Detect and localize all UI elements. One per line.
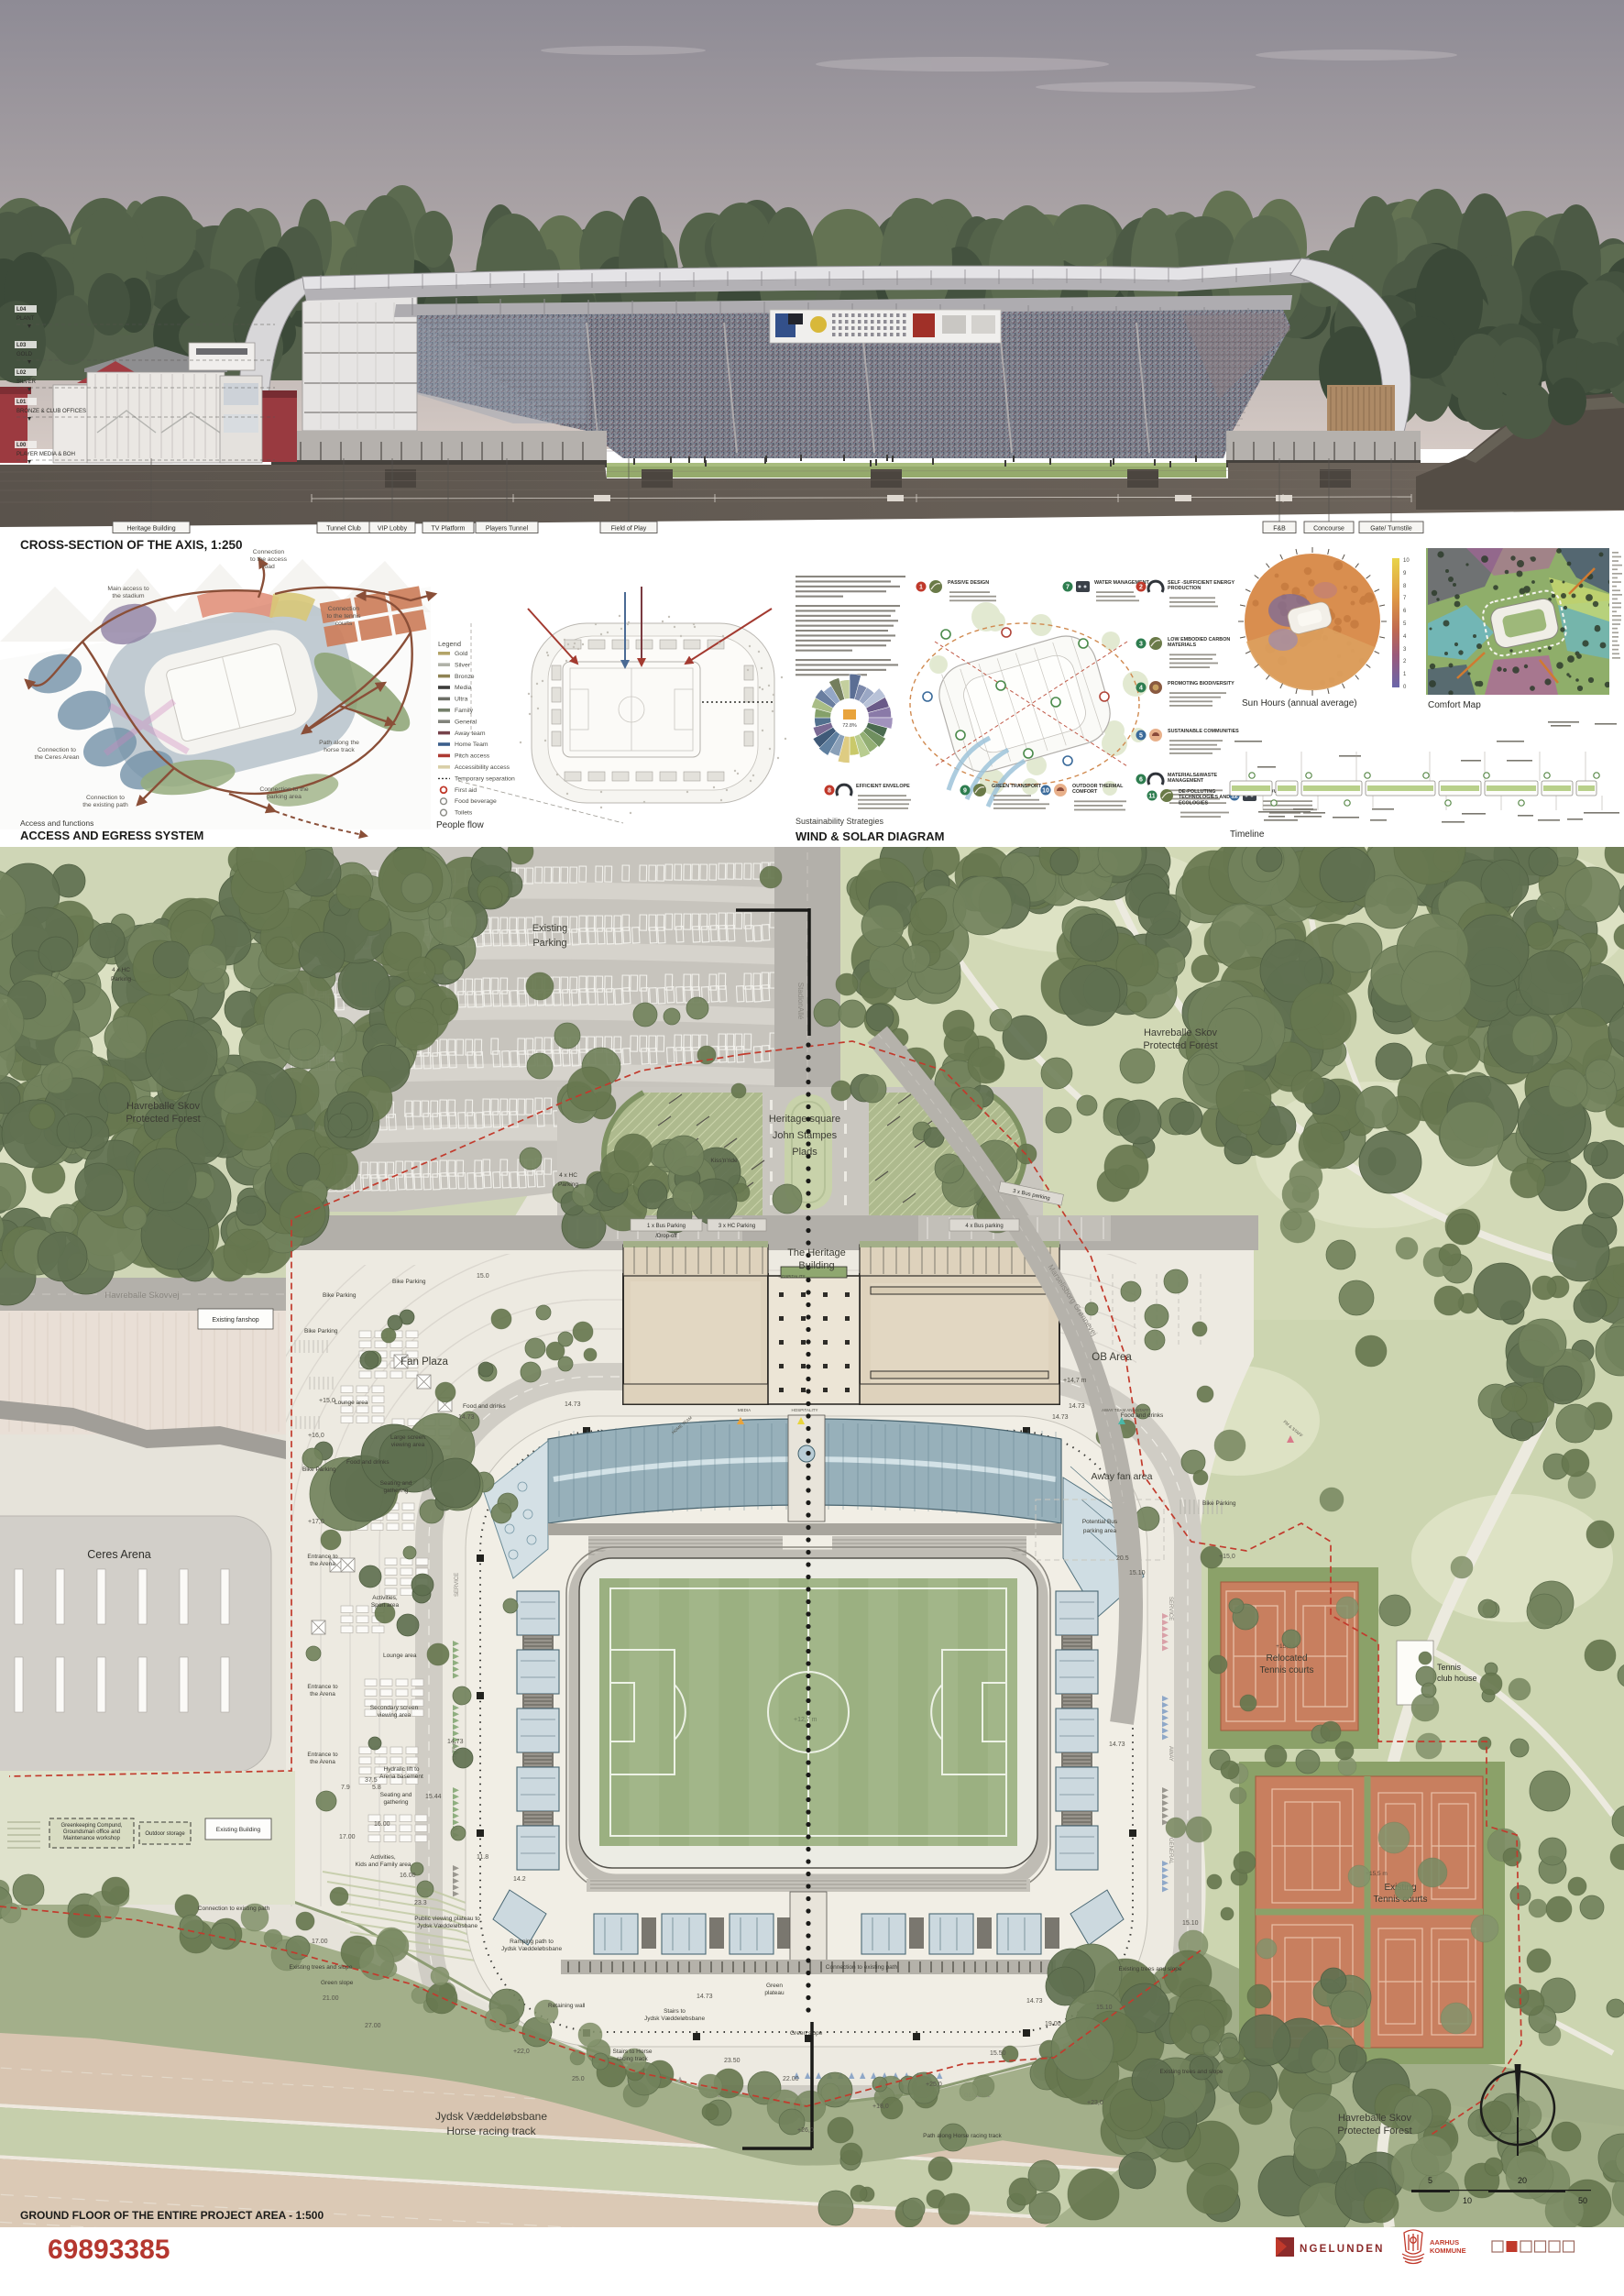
svg-text:Tunnel Club: Tunnel Club bbox=[326, 526, 361, 533]
svg-text:Gold: Gold bbox=[455, 651, 468, 657]
svg-text:5: 5 bbox=[1139, 733, 1143, 740]
svg-text:6: 6 bbox=[1139, 777, 1143, 784]
svg-text:First aid: First aid bbox=[455, 787, 477, 794]
svg-text:9: 9 bbox=[1403, 571, 1407, 577]
svg-text:Parking: Parking bbox=[111, 976, 131, 983]
svg-text:+23,0: +23,0 bbox=[1087, 2100, 1103, 2106]
svg-text:Bike Parking: Bike Parking bbox=[392, 1279, 426, 1285]
svg-text:Plads: Plads bbox=[792, 1147, 817, 1158]
svg-text:1: 1 bbox=[1403, 672, 1407, 677]
svg-text:StadionAllé: StadionAllé bbox=[796, 983, 805, 1020]
svg-text:Green: Green bbox=[766, 1983, 783, 1989]
svg-text:+16,0: +16,0 bbox=[308, 1433, 324, 1439]
svg-text:+14,7 m: +14,7 m bbox=[1063, 1378, 1087, 1384]
svg-text:+17,0: +17,0 bbox=[308, 1519, 324, 1525]
svg-text:Secondary screen: Secondary screen bbox=[370, 1705, 419, 1711]
svg-text:4: 4 bbox=[1403, 634, 1407, 640]
svg-text:People flow: People flow bbox=[436, 820, 484, 830]
svg-text:Path along Horse racing track: Path along Horse racing track bbox=[923, 2133, 1002, 2139]
svg-text:Ceres Arena: Ceres Arena bbox=[87, 1548, 151, 1561]
svg-text:25.0: 25.0 bbox=[572, 2076, 585, 2082]
svg-text:22.00: 22.00 bbox=[783, 2076, 799, 2082]
svg-text:14.73: 14.73 bbox=[1026, 1998, 1043, 2005]
svg-text:Connection to: Connection to bbox=[38, 747, 76, 753]
svg-text:Family: Family bbox=[455, 708, 474, 714]
svg-text:2: 2 bbox=[1139, 585, 1143, 591]
svg-text:OUTDOOR THERMAL: OUTDOOR THERMAL bbox=[1072, 784, 1124, 789]
svg-text:8: 8 bbox=[1403, 584, 1407, 589]
svg-text:Existing trees and slope: Existing trees and slope bbox=[289, 1964, 352, 1971]
svg-text:Gate/ Turnstile: Gate/ Turnstile bbox=[1370, 526, 1412, 533]
svg-text:5: 5 bbox=[1428, 2176, 1432, 2185]
svg-text:Bike Parking: Bike Parking bbox=[304, 1328, 338, 1335]
svg-text:Outdoor storage: Outdoor storage bbox=[145, 1831, 185, 1837]
svg-text:Activities,: Activities, bbox=[372, 1595, 398, 1601]
svg-text:ACCESS AND EGRESS SYSTEM: ACCESS AND EGRESS SYSTEM bbox=[20, 829, 203, 842]
svg-text:4 x HC: 4 x HC bbox=[112, 967, 130, 973]
svg-text:Protected Forest: Protected Forest bbox=[1143, 1040, 1217, 1051]
svg-text:15.50: 15.50 bbox=[990, 2050, 1006, 2057]
svg-text:the Ceres Arean: the Ceres Arean bbox=[34, 754, 79, 761]
svg-text:Parking: Parking bbox=[558, 1181, 578, 1188]
svg-text:15.0: 15.0 bbox=[477, 1273, 489, 1280]
svg-text:Retaining wall: Retaining wall bbox=[548, 2003, 586, 2009]
svg-text:4 x Bus parking: 4 x Bus parking bbox=[965, 1224, 1003, 1229]
svg-text:COMFORT: COMFORT bbox=[1072, 789, 1098, 795]
svg-text:10: 10 bbox=[1463, 2196, 1472, 2205]
svg-text:Comfort Map: Comfort Map bbox=[1428, 700, 1481, 710]
svg-text:PLANT: PLANT bbox=[16, 316, 35, 322]
svg-text:road: road bbox=[262, 564, 275, 570]
svg-text:4: 4 bbox=[1139, 686, 1143, 692]
svg-text:Temporary separation: Temporary separation bbox=[455, 775, 515, 782]
svg-text:10: 10 bbox=[1403, 558, 1410, 564]
svg-text:Bike Parking: Bike Parking bbox=[302, 1467, 336, 1473]
svg-text:Stairs to Horse: Stairs to Horse bbox=[613, 2049, 653, 2055]
svg-text:9: 9 bbox=[963, 788, 967, 795]
svg-text:L00: L00 bbox=[16, 443, 27, 448]
svg-text:Havreballe Skovvej: Havreballe Skovvej bbox=[104, 1291, 179, 1301]
svg-text:2: 2 bbox=[1403, 659, 1407, 665]
svg-text:17.00: 17.00 bbox=[339, 1834, 356, 1840]
svg-text:KOMMUNE: KOMMUNE bbox=[1430, 2247, 1466, 2255]
svg-text:Bike Parking: Bike Parking bbox=[323, 1292, 357, 1299]
svg-text:5.8: 5.8 bbox=[372, 1785, 381, 1791]
svg-text:Food beverage: Food beverage bbox=[455, 798, 497, 805]
svg-text:Kids and Family area: Kids and Family area bbox=[355, 1862, 411, 1868]
svg-text:the stadium: the stadium bbox=[112, 593, 144, 599]
svg-text:Connection to existing path: Connection to existing path bbox=[826, 1964, 898, 1971]
svg-text:20: 20 bbox=[1518, 2176, 1527, 2185]
svg-text:23.3: 23.3 bbox=[414, 1900, 427, 1906]
svg-text:LOW EMBODIED CARBON: LOW EMBODIED CARBON bbox=[1168, 637, 1230, 643]
svg-text:Hydralic lift to: Hydralic lift to bbox=[383, 1766, 419, 1773]
svg-text:5: 5 bbox=[1403, 621, 1407, 627]
svg-text:15.10: 15.10 bbox=[1182, 1920, 1199, 1927]
svg-text:Silver: Silver bbox=[455, 662, 471, 668]
svg-text:Sport area: Sport area bbox=[371, 1602, 400, 1609]
svg-text:Entrance to: Entrance to bbox=[307, 1752, 338, 1758]
svg-text:Building: Building bbox=[798, 1260, 834, 1271]
svg-text:21.00: 21.00 bbox=[323, 1995, 339, 2002]
svg-text:Greenkeeping Compund,: Greenkeeping Compund, bbox=[60, 1823, 122, 1829]
svg-text:3: 3 bbox=[1403, 647, 1407, 653]
svg-text:ECOLOGIES: ECOLOGIES bbox=[1179, 800, 1208, 806]
svg-text:Havreballe Skov: Havreballe Skov bbox=[1144, 1027, 1218, 1038]
svg-text:Accessibility access: Accessibility access bbox=[455, 764, 510, 771]
svg-text:Tennis: Tennis bbox=[1437, 1663, 1462, 1672]
svg-text:MEDIA: MEDIA bbox=[738, 1408, 751, 1412]
svg-text:SERVICE: SERVICE bbox=[1168, 1597, 1173, 1620]
svg-text:0: 0 bbox=[1403, 685, 1407, 690]
svg-text:L01: L01 bbox=[16, 400, 27, 405]
svg-text:Parking: Parking bbox=[532, 938, 566, 949]
svg-text:the Arena: the Arena bbox=[310, 1759, 335, 1765]
svg-text:10: 10 bbox=[1042, 788, 1049, 795]
svg-text:the existing path: the existing path bbox=[82, 802, 128, 808]
svg-text:Food and drinks: Food and drinks bbox=[346, 1459, 390, 1466]
svg-text:Existing: Existing bbox=[532, 923, 568, 934]
svg-text:Green slope: Green slope bbox=[790, 2030, 823, 2037]
svg-text:1: 1 bbox=[919, 585, 923, 591]
svg-text:Ramping path to: Ramping path to bbox=[510, 1939, 554, 1945]
svg-text:Protected Forest: Protected Forest bbox=[1337, 2126, 1411, 2137]
svg-text:Entrance to: Entrance to bbox=[307, 1684, 338, 1690]
svg-text:14.73: 14.73 bbox=[458, 1414, 475, 1421]
svg-text:3: 3 bbox=[1139, 642, 1143, 648]
svg-text:11: 11 bbox=[1148, 794, 1156, 800]
svg-text:AWAY: AWAY bbox=[1168, 1746, 1173, 1762]
svg-text:gathering: gathering bbox=[383, 1799, 408, 1806]
svg-text:Field of Play: Field of Play bbox=[611, 526, 647, 533]
svg-text:AARHUS: AARHUS bbox=[1430, 2238, 1459, 2247]
svg-text:Path along the: Path along the bbox=[319, 740, 359, 746]
svg-text:14.73: 14.73 bbox=[1109, 1741, 1125, 1748]
svg-text:TV Platform: TV Platform bbox=[432, 526, 466, 533]
svg-text:MATERIALS: MATERIALS bbox=[1168, 643, 1196, 648]
svg-text:SILVER: SILVER bbox=[16, 379, 37, 385]
svg-text:viewing area: viewing area bbox=[378, 1712, 411, 1719]
svg-text:Timeline: Timeline bbox=[1230, 829, 1265, 840]
svg-text:Existing trees and slope: Existing trees and slope bbox=[1118, 1966, 1181, 1972]
svg-text:+26,0: +26,0 bbox=[797, 2127, 814, 2134]
svg-text:Connection to: Connection to bbox=[86, 795, 125, 801]
svg-text:Jydsk Væddeløbsbane: Jydsk Væddeløbsbane bbox=[435, 2110, 547, 2123]
svg-text:PROMOTING BIODIVERSITY: PROMOTING BIODIVERSITY bbox=[1168, 681, 1234, 687]
svg-text:Entrance to: Entrance to bbox=[307, 1554, 338, 1560]
svg-text:Existing fanshop: Existing fanshop bbox=[212, 1317, 258, 1324]
svg-text:20.5: 20.5 bbox=[1116, 1555, 1129, 1562]
svg-text:GOLD: GOLD bbox=[16, 352, 33, 357]
svg-text:Lounge area: Lounge area bbox=[335, 1400, 368, 1406]
svg-text:/Drop-off: /Drop-off bbox=[655, 1234, 677, 1239]
svg-text:GROUND FLOOR OF THE ENTIRE PRO: GROUND FLOOR OF THE ENTIRE PROJECT AREA … bbox=[20, 2209, 324, 2222]
svg-text:6: 6 bbox=[1403, 609, 1407, 614]
svg-text:+12,7 m: +12,7 m bbox=[794, 1717, 817, 1723]
svg-text:Public viewing plateau to: Public viewing plateau to bbox=[414, 1916, 480, 1922]
svg-text:Heritage Building: Heritage Building bbox=[126, 526, 175, 533]
svg-text:Seating and: Seating and bbox=[380, 1480, 412, 1487]
svg-text:Sustainability Strategies: Sustainability Strategies bbox=[796, 817, 884, 826]
svg-text:Large screen: Large screen bbox=[390, 1434, 425, 1441]
svg-text:15.44: 15.44 bbox=[425, 1794, 442, 1800]
svg-text:Seating and: Seating and bbox=[380, 1792, 412, 1798]
svg-text:4 x HC: 4 x HC bbox=[559, 1172, 577, 1179]
svg-text:Food and drinks: Food and drinks bbox=[463, 1403, 506, 1410]
svg-text:7: 7 bbox=[1066, 585, 1070, 591]
svg-text:15.10: 15.10 bbox=[1129, 1570, 1146, 1576]
svg-text:Food and drinks: Food and drinks bbox=[1121, 1412, 1164, 1419]
svg-text:Fan Plaza: Fan Plaza bbox=[401, 1357, 448, 1368]
svg-text:Connection: Connection bbox=[253, 549, 285, 555]
svg-text:L04: L04 bbox=[16, 307, 27, 313]
svg-text:AWAY TEAM AND STAFF: AWAY TEAM AND STAFF bbox=[1102, 1408, 1149, 1412]
svg-text:Arena basement: Arena basement bbox=[379, 1774, 423, 1780]
svg-text:Pitch access: Pitch access bbox=[455, 753, 490, 760]
svg-text:Toilets: Toilets bbox=[455, 810, 473, 817]
svg-text:MANAGEMENT: MANAGEMENT bbox=[1168, 778, 1204, 784]
svg-text:+25,0: +25,0 bbox=[926, 2082, 942, 2088]
svg-text:16.00: 16.00 bbox=[400, 1873, 416, 1879]
svg-text:14.2: 14.2 bbox=[513, 1876, 526, 1883]
svg-text:the Arena: the Arena bbox=[310, 1691, 335, 1697]
svg-text:parking area: parking area bbox=[267, 794, 302, 800]
svg-text:Bike Parking: Bike Parking bbox=[1202, 1500, 1236, 1507]
svg-text:Kiss'n'ride: Kiss'n'ride bbox=[710, 1158, 738, 1164]
svg-text:17.00: 17.00 bbox=[312, 1939, 328, 1945]
svg-text:23.50: 23.50 bbox=[724, 2058, 741, 2064]
svg-text:Existing trees and slope: Existing trees and slope bbox=[1159, 2069, 1223, 2075]
svg-text:Bronze: Bronze bbox=[455, 674, 475, 680]
svg-text:L02: L02 bbox=[16, 370, 27, 376]
svg-text:plateau: plateau bbox=[764, 1990, 785, 1996]
svg-text:Away team: Away team bbox=[455, 731, 486, 737]
svg-text:27.00: 27.00 bbox=[365, 2023, 381, 2029]
svg-text:14.73: 14.73 bbox=[447, 1739, 464, 1745]
svg-text:Havreballe Skov: Havreballe Skov bbox=[126, 1101, 201, 1112]
svg-text:Groundsman office and: Groundsman office and bbox=[63, 1829, 120, 1835]
svg-text:Media: Media bbox=[455, 685, 472, 691]
svg-text:WIND & SOLAR DIAGRAM: WIND & SOLAR DIAGRAM bbox=[796, 829, 945, 843]
svg-text:Existing Building: Existing Building bbox=[216, 1827, 261, 1833]
svg-text:MATERIALS&WASTE: MATERIALS&WASTE bbox=[1168, 773, 1218, 778]
svg-text:gathering: gathering bbox=[383, 1488, 408, 1494]
svg-text:7.9: 7.9 bbox=[341, 1785, 350, 1791]
svg-text:L03: L03 bbox=[16, 343, 27, 348]
svg-text:HOSPITALITY: HOSPITALITY bbox=[779, 1274, 806, 1279]
svg-text:Access and functions: Access and functions bbox=[20, 818, 93, 828]
svg-text:BRONZE & CLUB OFFICES: BRONZE & CLUB OFFICES bbox=[16, 409, 86, 414]
svg-text:14.73: 14.73 bbox=[1069, 1403, 1085, 1410]
svg-text:Home Team: Home Team bbox=[455, 742, 488, 748]
svg-text:Jydsk Væddeløbsbane: Jydsk Væddeløbsbane bbox=[644, 2016, 706, 2022]
svg-text:to the access: to the access bbox=[250, 556, 288, 563]
svg-text:+15,0: +15,0 bbox=[1219, 1554, 1235, 1560]
svg-text:Protected Forest: Protected Forest bbox=[126, 1114, 200, 1125]
svg-text:Concourse: Concourse bbox=[1313, 526, 1344, 533]
svg-text:Heritage square: Heritage square bbox=[769, 1114, 840, 1125]
svg-text:+18,0: +18,0 bbox=[872, 2104, 889, 2110]
svg-text:The Heritage: The Heritage bbox=[787, 1247, 846, 1258]
svg-text:37.5: 37.5 bbox=[365, 1777, 378, 1784]
svg-text:Connection to the: Connection to the bbox=[259, 786, 308, 793]
svg-text:HOSPITALITY: HOSPITALITY bbox=[792, 1408, 818, 1412]
svg-text:NGELUNDEN: NGELUNDEN bbox=[1300, 2244, 1385, 2255]
svg-text:Lounge area: Lounge area bbox=[383, 1653, 417, 1659]
svg-text:TECHNOLOGIES AND: TECHNOLOGIES AND bbox=[1179, 795, 1230, 800]
svg-text:Connection: Connection bbox=[328, 606, 360, 612]
svg-text:Relocated: Relocated bbox=[1266, 1653, 1307, 1664]
svg-text:PLAYER MEDIA & BOH: PLAYER MEDIA & BOH bbox=[16, 452, 75, 457]
svg-text:F&B: F&B bbox=[1273, 526, 1286, 533]
svg-text:CROSS-SECTION OF THE AXIS, 1:2: CROSS-SECTION OF THE AXIS, 1:250 bbox=[20, 538, 243, 552]
svg-text:Jydsk Væddeløbsbane: Jydsk Væddeløbsbane bbox=[501, 1946, 563, 1952]
svg-text:11.8: 11.8 bbox=[477, 1854, 488, 1861]
svg-text:SUSTAINABLE COMMUNITIES: SUSTAINABLE COMMUNITIES bbox=[1168, 729, 1239, 734]
svg-text:50: 50 bbox=[1578, 2196, 1587, 2205]
svg-text:GENERAL: GENERAL bbox=[1168, 1838, 1173, 1864]
svg-text:+15,0: +15,0 bbox=[319, 1398, 335, 1404]
svg-text:8: 8 bbox=[828, 788, 831, 795]
svg-text:Legend: Legend bbox=[438, 640, 461, 648]
svg-text:Stairs to: Stairs to bbox=[664, 2008, 686, 2015]
svg-text:19.00: 19.00 bbox=[1045, 2021, 1061, 2027]
svg-text:John Stampes: John Stampes bbox=[773, 1130, 838, 1141]
svg-text:Jydsk Væddeløbsbane: Jydsk Væddeløbsbane bbox=[417, 1923, 478, 1929]
svg-text:+22,0: +22,0 bbox=[513, 2049, 530, 2055]
svg-text:EFFICIENT ENVELOPE: EFFICIENT ENVELOPE bbox=[856, 784, 910, 789]
svg-text:OB Area: OB Area bbox=[1092, 1352, 1132, 1363]
svg-text:Green slope: Green slope bbox=[321, 1980, 354, 1986]
svg-text:DE-POLLUTING: DE-POLLUTING bbox=[1179, 789, 1215, 795]
svg-text:Potential Bus: Potential Bus bbox=[1082, 1519, 1118, 1525]
svg-text:14.73: 14.73 bbox=[565, 1401, 581, 1408]
svg-text:the Arena: the Arena bbox=[310, 1561, 335, 1567]
svg-text:VIP Lobby: VIP Lobby bbox=[378, 526, 408, 533]
svg-text:Horse racing track: Horse racing track bbox=[446, 2125, 536, 2137]
svg-text:Players Tunnel: Players Tunnel bbox=[486, 526, 529, 533]
svg-text:SELF -SUFFICIENT ENERGY: SELF -SUFFICIENT ENERGY bbox=[1168, 580, 1234, 586]
svg-text:club house: club house bbox=[1437, 1674, 1477, 1683]
svg-text:72.8%: 72.8% bbox=[842, 723, 857, 729]
svg-text:Away fan area: Away fan area bbox=[1092, 1471, 1153, 1482]
svg-text:General: General bbox=[455, 719, 477, 725]
svg-text:Maintenance workshop: Maintenance workshop bbox=[63, 1836, 120, 1841]
svg-text:courts: courts bbox=[335, 621, 353, 627]
svg-text:GREEN TRANSPORT: GREEN TRANSPORT bbox=[992, 784, 1042, 789]
svg-text:PASSIVE DESIGN: PASSIVE DESIGN bbox=[948, 580, 989, 586]
svg-text:15.10: 15.10 bbox=[1096, 2005, 1113, 2011]
svg-text:to the tennis: to the tennis bbox=[326, 613, 361, 620]
svg-text:1 x Bus Parking: 1 x Bus Parking bbox=[647, 1224, 686, 1229]
svg-text:3 x HC Parking: 3 x HC Parking bbox=[719, 1224, 755, 1229]
svg-text:racing track: racing track bbox=[617, 2056, 648, 2062]
svg-text:PRODUCTION: PRODUCTION bbox=[1168, 586, 1201, 591]
svg-text:7: 7 bbox=[1403, 596, 1407, 601]
svg-text:16.00: 16.00 bbox=[374, 1821, 390, 1828]
svg-text:SERVICE: SERVICE bbox=[455, 1573, 460, 1597]
svg-text:Sun Hours (annual average): Sun Hours (annual average) bbox=[1242, 698, 1357, 709]
svg-text:Havreballe Skov: Havreballe Skov bbox=[1338, 2113, 1412, 2124]
svg-text:parking area: parking area bbox=[1083, 1528, 1117, 1534]
svg-text:Main access to: Main access to bbox=[107, 586, 149, 592]
svg-text:69893385: 69893385 bbox=[48, 2235, 170, 2265]
svg-text:horse track: horse track bbox=[324, 747, 355, 753]
svg-text:Activities,: Activities, bbox=[370, 1854, 396, 1861]
svg-text:Ultra: Ultra bbox=[455, 697, 468, 703]
svg-text:14.73: 14.73 bbox=[1052, 1414, 1069, 1421]
svg-text:Connection to existing path: Connection to existing path bbox=[198, 1906, 270, 1912]
svg-text:viewing area: viewing area bbox=[391, 1442, 425, 1448]
svg-text:14.73: 14.73 bbox=[697, 1994, 713, 2000]
svg-text:Tennis courts: Tennis courts bbox=[1260, 1665, 1314, 1675]
